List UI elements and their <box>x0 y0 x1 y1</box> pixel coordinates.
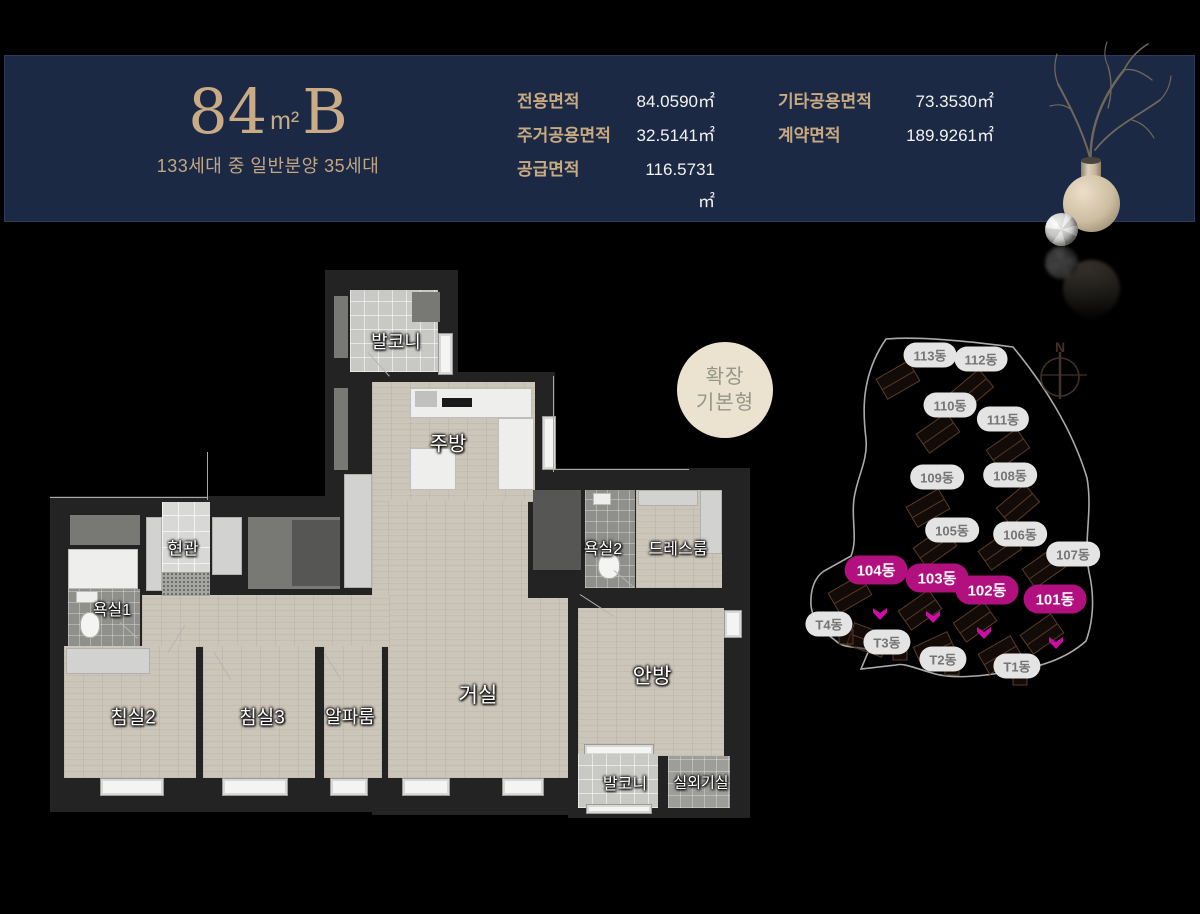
building-pill: T4동 <box>805 612 852 637</box>
plan-mgray <box>334 388 348 470</box>
plan-win <box>502 778 544 796</box>
building-pill: 108동 <box>983 463 1037 488</box>
room-label: 침실2 <box>110 703 156 730</box>
plan-lgray2 <box>415 391 437 407</box>
plan-win <box>100 778 164 796</box>
badge-line-1: 확장 <box>706 364 745 390</box>
vase-art <box>1020 28 1190 246</box>
plan-hline <box>50 497 208 498</box>
plan-mgray <box>412 292 440 322</box>
room-label: 발코니 <box>603 770 647 794</box>
room-label: 욕실1 <box>93 596 131 620</box>
badge-line-2: 기본형 <box>696 390 754 416</box>
compass-north-letter: N <box>1055 339 1065 355</box>
site-map: N 113동112동110동111동109동108동105동106동107동10… <box>795 325 1125 705</box>
page: 84m²B 133세대 중 일반분양 35세대 전용면적84.0590㎡주거공용… <box>0 0 1200 914</box>
room-label: 욕실2 <box>584 535 622 559</box>
building-pill-highlighted: 101동 <box>1024 585 1087 614</box>
building-pill: 110동 <box>924 393 977 418</box>
plan-win <box>402 778 450 796</box>
expansion-badge: 확장 기본형 <box>677 342 773 438</box>
plan-white <box>593 493 611 505</box>
plan-wood <box>388 500 528 602</box>
room-label: 알파룸 <box>325 703 375 729</box>
plan-lgray <box>146 517 162 591</box>
building-pill: T3동 <box>863 630 910 655</box>
building-pill: T1동 <box>993 654 1040 679</box>
plan-win <box>330 778 368 796</box>
compass-icon: N <box>1041 339 1087 399</box>
vase-opening <box>1081 157 1101 164</box>
plan-vline <box>207 452 208 500</box>
building-pill: 106동 <box>993 522 1047 547</box>
plan-white <box>498 418 534 490</box>
plan-dgray <box>533 490 581 570</box>
plan-white <box>68 549 138 589</box>
plan-hline <box>553 376 554 472</box>
room-label: 발코니 <box>371 328 421 354</box>
plan-win <box>222 778 288 796</box>
plan-lgray <box>344 474 372 588</box>
polyhedron-ornament <box>1045 213 1078 246</box>
plan-wood <box>142 595 390 647</box>
room-label: 주방 <box>430 428 467 457</box>
plan-win <box>586 804 652 814</box>
room-label: 침실3 <box>239 703 285 730</box>
room-label: 안방 <box>633 660 672 690</box>
plan-win <box>724 610 742 638</box>
plan-mat <box>162 572 210 596</box>
plan-hline <box>553 469 689 470</box>
building-pill: 105동 <box>925 518 979 543</box>
plan-dark <box>442 398 472 407</box>
room-label: 실외기실 <box>673 772 728 793</box>
room-label: 현관 <box>167 535 198 560</box>
plan-dgray <box>292 520 340 586</box>
plan-mgray <box>334 296 348 358</box>
vase-photo <box>1020 28 1190 328</box>
plan-mgray <box>70 515 140 545</box>
room-label: 드레스룸 <box>649 535 708 559</box>
building-pill: 112동 <box>955 347 1008 372</box>
vase-reflection-fade <box>1020 246 1190 328</box>
building-pill: T2동 <box>919 647 966 672</box>
building-pill: 109동 <box>910 465 964 490</box>
building-pill: 111동 <box>977 407 1029 432</box>
room-label: 거실 <box>459 679 498 709</box>
building-pill: 113동 <box>904 343 957 368</box>
plan-lgray <box>638 490 698 506</box>
building-pill-highlighted: 104동 <box>845 556 908 585</box>
plan-lgray <box>212 517 242 575</box>
building-pill: 107동 <box>1046 542 1100 567</box>
building-pill-highlighted: 102동 <box>956 576 1019 605</box>
plan-win <box>438 333 453 375</box>
plan-lgray <box>66 648 150 674</box>
